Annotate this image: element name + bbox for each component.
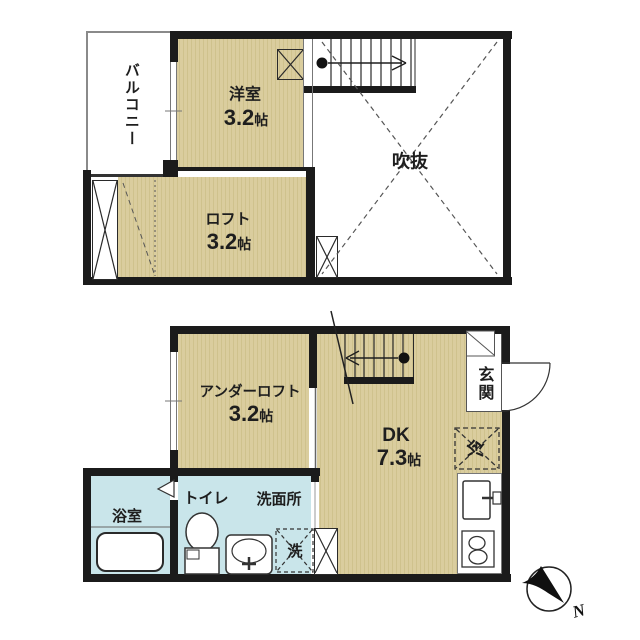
wall-underloft-dk <box>309 326 317 388</box>
wall-balcony-stub-top <box>170 31 178 62</box>
wall-washroom-dk <box>311 468 319 482</box>
under-loft-size: 3.2帖 <box>229 402 274 426</box>
upper-stairs-area <box>303 39 416 86</box>
underloft-window-strip <box>170 352 177 450</box>
wall-washroom-top <box>83 468 320 476</box>
entrance-door-swing <box>502 363 550 411</box>
wall-lower-right-a <box>502 326 510 364</box>
wall-loft-top-line <box>91 174 163 177</box>
compass-circle <box>527 567 571 611</box>
wall-balcony-stub-bottom <box>163 160 178 177</box>
wall-westernroom-loft-divider <box>178 167 306 171</box>
wall-underloft-left-a <box>170 326 178 352</box>
refrigerator-label: 冷 <box>468 439 487 457</box>
compass: N <box>522 566 588 622</box>
western-room-size-unit: 帖 <box>254 112 268 128</box>
wall-upper-bottom <box>83 277 512 285</box>
wall-lower-left <box>83 468 91 582</box>
dk-size: 7.3帖 <box>377 446 422 470</box>
under-loft-size-unit: 帖 <box>259 408 273 424</box>
bathroom-door-gap <box>170 482 178 500</box>
western-room-size-num: 3.2 <box>224 105 255 130</box>
under-loft-size-num: 3.2 <box>229 401 260 426</box>
wall-loft-right <box>306 167 315 277</box>
dk-label: DK <box>382 426 409 446</box>
atrium-label: 吹抜 <box>392 153 428 172</box>
kitchen-counter-area <box>457 473 502 574</box>
wall-lower-stairs-bottom <box>344 377 414 384</box>
dk-window-xbox <box>314 528 338 575</box>
wall-lower-bottom <box>83 574 511 582</box>
wall-lower-right-b <box>502 410 510 582</box>
under-loft-label: アンダーロフト <box>200 385 301 400</box>
western-room-label: 洋室 <box>229 88 261 105</box>
washer-label: 洗 <box>287 544 302 560</box>
dk-size-num: 7.3 <box>377 445 408 470</box>
wall-upper-right <box>503 31 511 285</box>
loft-size: 3.2帖 <box>207 230 252 254</box>
loft-size-num: 3.2 <box>207 229 238 254</box>
washroom-dk-opening <box>311 482 319 528</box>
wall-bath-toilet-a <box>170 468 178 482</box>
wall-upper-stairs-bottom <box>303 86 416 93</box>
compass-north-label: N <box>569 600 587 622</box>
atrium-window-xbox <box>316 236 338 278</box>
wall-bath-toilet-b <box>170 500 178 576</box>
loft-size-unit: 帖 <box>237 236 251 252</box>
compass-needle <box>522 566 564 603</box>
loft-window-xbox <box>92 180 118 280</box>
western-room-hatch-xbox <box>277 49 304 80</box>
dk-size-unit: 帖 <box>407 452 421 468</box>
entrance-label: 玄関 <box>475 366 492 402</box>
washroom-label: 洗面所 <box>256 492 301 508</box>
wall-upper-left <box>83 170 91 285</box>
wall-lower-top <box>170 326 510 334</box>
balcony-window-strip <box>170 62 177 160</box>
wall-upper-top <box>170 31 512 39</box>
toilet-label: トイレ <box>183 491 228 507</box>
western-room-size: 3.2帖 <box>224 106 269 130</box>
bathroom-label: 浴室 <box>112 509 142 525</box>
balcony-label: バルコニー <box>123 63 139 148</box>
floor-plan-canvas: N バルコニー 洋室 3.2帖 ロフト 3.2帖 吹抜 アンダーロフト 3.2帖… <box>0 0 640 640</box>
loft-label: ロフト <box>205 212 250 228</box>
